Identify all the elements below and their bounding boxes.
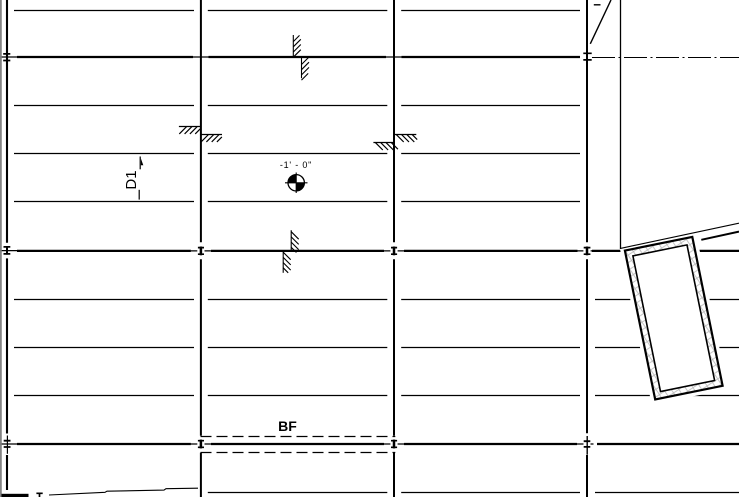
- svg-text:D1: D1: [123, 170, 140, 189]
- svg-text:BF: BF: [278, 418, 297, 434]
- svg-text:-1' - 0": -1' - 0": [280, 160, 312, 170]
